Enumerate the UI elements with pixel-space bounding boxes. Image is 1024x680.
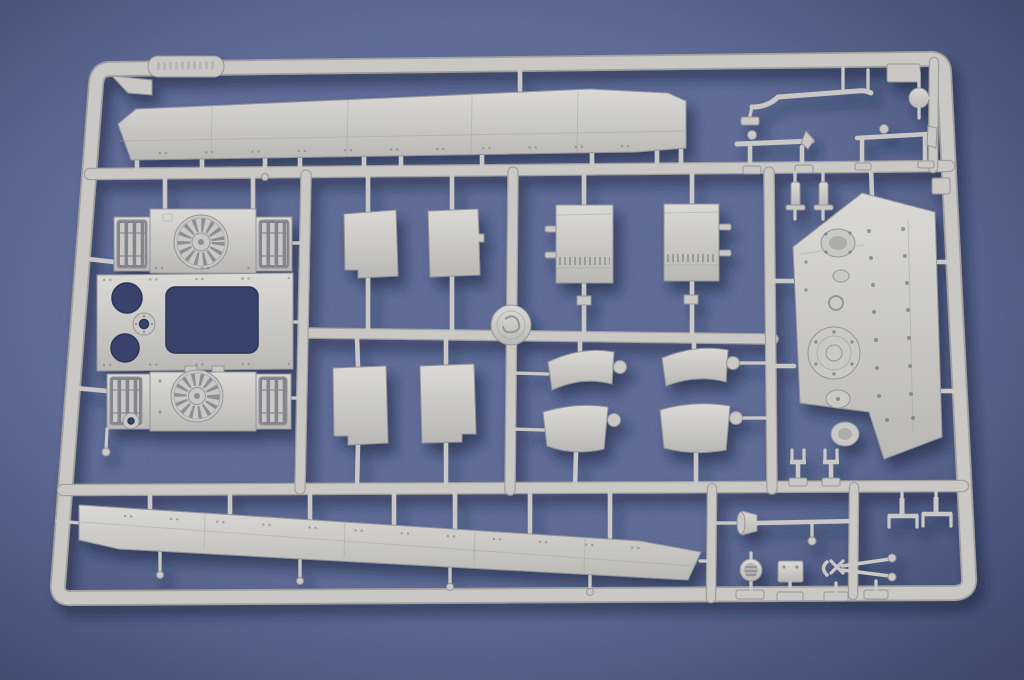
connector-peg xyxy=(730,412,743,425)
center-hub-emblem xyxy=(491,305,531,345)
fan-grille xyxy=(171,370,223,422)
engine-deck-center-plate xyxy=(97,273,293,375)
round-hole xyxy=(111,334,139,362)
rect-cutout xyxy=(166,287,258,353)
access-panel xyxy=(428,209,484,277)
access-panel xyxy=(420,364,476,443)
frame-pad xyxy=(887,64,920,82)
round-hole xyxy=(112,283,142,313)
louver-grille xyxy=(117,220,147,268)
curved-fender xyxy=(660,404,730,453)
part-small-plate xyxy=(777,561,803,601)
sprue-photo xyxy=(0,0,1024,680)
connector-peg xyxy=(727,357,740,370)
louver-grille xyxy=(259,220,289,268)
curved-fender xyxy=(543,405,608,452)
access-panel xyxy=(333,366,388,445)
fan-grille xyxy=(174,215,228,269)
large-round-boss xyxy=(808,327,860,379)
connector-peg xyxy=(614,361,627,374)
access-panel xyxy=(344,210,398,278)
bolted-boss xyxy=(821,229,855,257)
frame-pad xyxy=(932,178,950,194)
bolted-boss xyxy=(831,422,859,446)
engine-deck-upper-section xyxy=(114,209,292,273)
molded-label-tag xyxy=(148,56,224,77)
louver-grille xyxy=(259,377,287,425)
bolted-ring xyxy=(133,313,155,335)
photo-stage xyxy=(0,0,1024,680)
connector-peg xyxy=(608,414,621,427)
